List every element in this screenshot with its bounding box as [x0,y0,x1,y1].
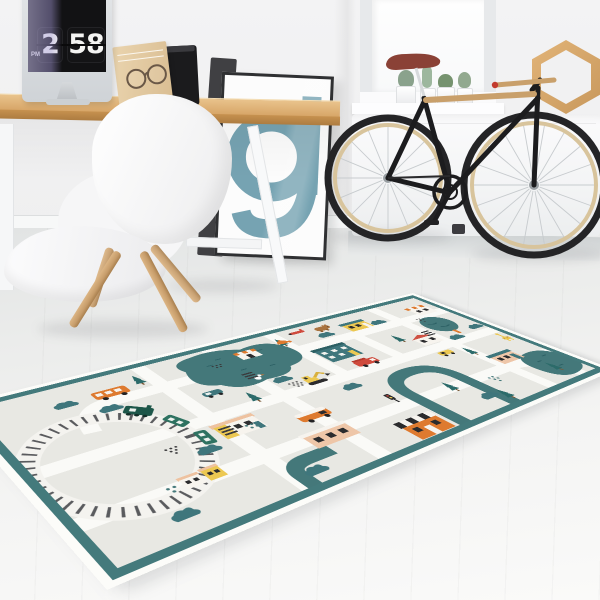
eyeglasses [122,57,172,94]
bike-brake-tip [492,82,498,88]
bike-saddle [386,54,440,70]
chair [0,90,250,340]
bike-handlebar [496,80,554,85]
bicycle [328,34,600,266]
bike-top-tube-wood [426,94,534,100]
bike-seatpost [416,68,424,96]
monitor-screen: 2 58 PM [28,0,106,72]
clipboard-string [117,49,163,56]
room-photo: g 2 [0,0,600,600]
screen-reflection [28,0,62,72]
